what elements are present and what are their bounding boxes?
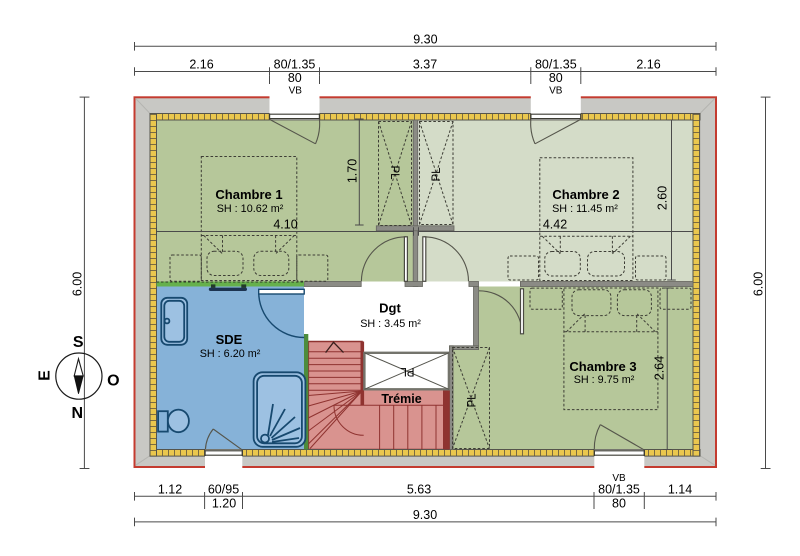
svg-text:6.00: 6.00 [752, 272, 766, 296]
svg-text:80: 80 [612, 497, 626, 511]
svg-text:Chambre 2: Chambre 2 [552, 187, 619, 202]
svg-text:SH : 10.62 m²: SH : 10.62 m² [217, 203, 284, 215]
svg-text:1.12: 1.12 [158, 482, 182, 496]
svg-text:9.30: 9.30 [413, 508, 437, 522]
svg-text:6.00: 6.00 [71, 272, 85, 296]
svg-text:3.37: 3.37 [413, 58, 437, 72]
svg-text:Dgt: Dgt [379, 301, 401, 316]
svg-text:80: 80 [288, 71, 302, 85]
svg-text:PL: PL [466, 393, 478, 408]
svg-text:Trémie: Trémie [381, 392, 421, 406]
svg-text:PL: PL [388, 165, 400, 180]
svg-text:2.16: 2.16 [636, 58, 660, 72]
svg-text:SH : 6.20 m²: SH : 6.20 m² [200, 348, 261, 360]
svg-text:4.10: 4.10 [273, 218, 297, 232]
svg-text:SH : 9.75 m²: SH : 9.75 m² [574, 374, 635, 386]
svg-text:SH : 11.45 m²: SH : 11.45 m² [552, 203, 618, 215]
svg-text:Chambre 3: Chambre 3 [569, 359, 636, 374]
svg-text:2.16: 2.16 [189, 58, 213, 72]
svg-text:VB: VB [549, 86, 563, 97]
svg-text:1.70: 1.70 [346, 159, 360, 183]
svg-text:80/1.35: 80/1.35 [598, 482, 640, 496]
svg-text:SDE: SDE [216, 332, 243, 347]
svg-text:9.30: 9.30 [413, 33, 437, 47]
svg-text:O: O [107, 372, 119, 389]
svg-text:S: S [73, 334, 84, 351]
svg-text:80/1.35: 80/1.35 [274, 58, 316, 72]
svg-text:E: E [36, 370, 53, 381]
svg-text:PL: PL [431, 167, 443, 182]
svg-text:2.64: 2.64 [653, 356, 667, 380]
svg-text:5.63: 5.63 [407, 482, 431, 496]
svg-text:Chambre 1: Chambre 1 [215, 187, 282, 202]
svg-text:VB: VB [289, 86, 303, 97]
svg-text:1.20: 1.20 [212, 497, 236, 511]
svg-text:2.60: 2.60 [656, 186, 670, 210]
svg-text:N: N [72, 405, 84, 422]
svg-text:VB: VB [612, 473, 626, 484]
svg-text:60/95: 60/95 [208, 482, 239, 496]
svg-text:1.14: 1.14 [668, 482, 692, 496]
svg-text:4.42: 4.42 [543, 218, 567, 232]
svg-text:80: 80 [549, 71, 563, 85]
svg-text:SH : 3.45 m²: SH : 3.45 m² [360, 318, 421, 330]
svg-text:PL: PL [400, 365, 415, 377]
svg-text:80/1.35: 80/1.35 [535, 58, 577, 72]
